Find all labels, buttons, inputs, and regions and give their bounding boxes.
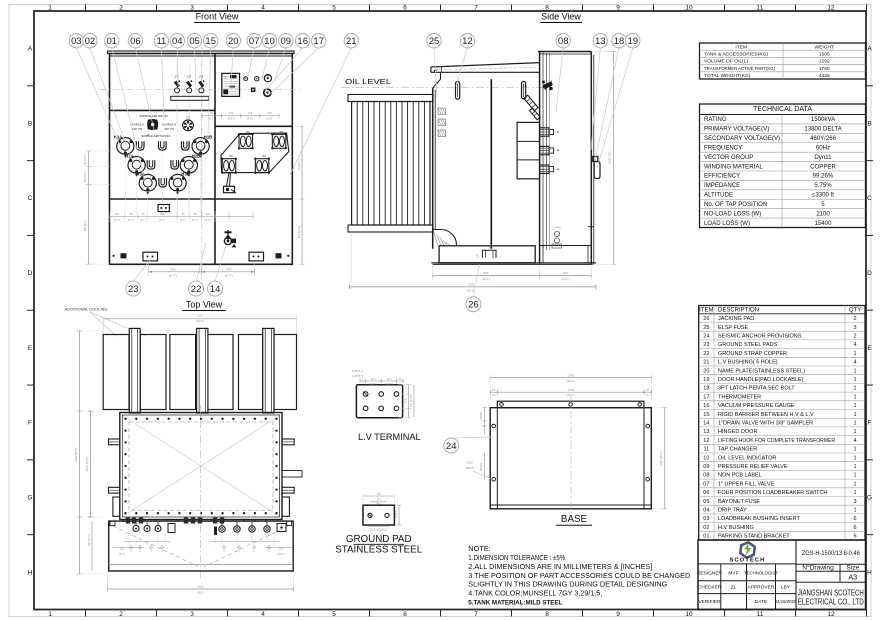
svg-text:[1"]: [1"] xyxy=(646,395,650,397)
svg-text:ITEM: ITEM xyxy=(735,44,747,50)
svg-text:DESCRIPTION: DESCRIPTION xyxy=(718,308,759,314)
svg-text:[3.7"]: [3.7"] xyxy=(180,219,186,222)
svg-text:[5.3"]: [5.3"] xyxy=(267,117,273,120)
svg-text:450: 450 xyxy=(171,267,176,271)
svg-text:17: 17 xyxy=(703,394,709,400)
svg-text:LOADBREAK BUSHING INSERT: LOADBREAK BUSHING INSERT xyxy=(718,516,800,522)
svg-text:1: 1 xyxy=(853,351,856,357)
svg-text:20: 20 xyxy=(228,36,239,47)
svg-text:895: 895 xyxy=(483,271,488,275)
svg-text:L.V BUSHING( 6 HOLE): L.V BUSHING( 6 HOLE) xyxy=(718,360,778,366)
svg-text:[3.7"]: [3.7"] xyxy=(140,219,146,222)
svg-text:ADDITIONAL COOLING: ADDITIONAL COOLING xyxy=(65,308,108,312)
svg-text:09: 09 xyxy=(703,464,709,470)
svg-text:[3.7"]: [3.7"] xyxy=(192,219,198,222)
svg-text:220: 220 xyxy=(120,547,125,551)
svg-text:02: 02 xyxy=(85,36,96,47)
svg-text:H: H xyxy=(28,569,33,576)
svg-text:4: 4 xyxy=(853,360,856,366)
svg-text:2.ALL DIMENSIONS ARE IN MILLIM: 2.ALL DIMENSIONS ARE IN MILLIMETERS & [I… xyxy=(468,562,652,571)
svg-text:1292: 1292 xyxy=(819,59,830,65)
svg-text:1"DRAIN VALVE WITH 3/8" SAMPLE: 1"DRAIN VALVE WITH 3/8" SAMPLER xyxy=(718,421,813,427)
svg-text:OIL LEVEL: OIL LEVEL xyxy=(345,77,391,86)
svg-text:1: 1 xyxy=(853,447,856,453)
svg-text:750: 750 xyxy=(279,547,284,551)
svg-text:VOLUME OF OIL(L): VOLUME OF OIL(L) xyxy=(704,59,748,65)
svg-text:3.THE POSITION OF PART ACCESSO: 3.THE POSITION OF PART ACCESSORIES COULD… xyxy=(468,571,690,580)
svg-text:TAP ON: TAP ON xyxy=(164,127,174,131)
svg-text:SLIGHTLY IN THIS DRAWING DURIN: SLIGHTLY IN THIS DRAWING DURING DETAIL D… xyxy=(468,580,667,589)
svg-text:X2: X2 xyxy=(262,154,266,158)
svg-text:15400: 15400 xyxy=(815,220,833,227)
svg-text:[1"]: [1"] xyxy=(492,395,496,397)
svg-text:[61"]: [61"] xyxy=(198,590,204,594)
svg-text:[5.3"]: [5.3"] xyxy=(247,117,253,120)
svg-text:THERMOMETER: THERMOMETER xyxy=(718,394,761,400)
svg-text:VECTOR GROUP: VECTOR GROUP xyxy=(704,154,753,161)
svg-text:3: 3 xyxy=(853,499,856,505)
svg-text:15: 15 xyxy=(703,412,709,418)
svg-text:11: 11 xyxy=(757,611,764,618)
svg-text:903.5 [35.6"]: 903.5 [35.6"] xyxy=(85,456,89,471)
svg-text:5: 5 xyxy=(332,611,336,618)
svg-text:1: 1 xyxy=(48,611,52,618)
svg-text:19: 19 xyxy=(703,377,709,383)
svg-text:LBY: LBY xyxy=(781,585,791,591)
svg-text:120: 120 xyxy=(206,212,211,216)
svg-text:QTY: QTY xyxy=(849,308,861,314)
svg-text:1: 1 xyxy=(853,421,856,427)
svg-text:835 [32.9"]: 835 [32.9"] xyxy=(297,225,301,238)
svg-text:[54.3"]: [54.3"] xyxy=(567,379,575,383)
svg-text:[3"]: [3"] xyxy=(377,499,381,502)
svg-text:60Hz: 60Hz xyxy=(816,144,830,151)
svg-text:L.V TERMINAL: L.V TERMINAL xyxy=(358,432,421,442)
svg-text:GROUND STEEL PADS: GROUND STEEL PADS xyxy=(718,342,778,348)
svg-text:1505: 1505 xyxy=(819,52,830,58)
svg-text:[17.7"]: [17.7"] xyxy=(225,273,233,277)
svg-text:12: 12 xyxy=(827,611,835,618)
svg-text:1360: 1360 xyxy=(568,373,575,377)
svg-text:205 [8"]: 205 [8"] xyxy=(480,412,483,420)
svg-text:129: 129 xyxy=(229,111,234,115)
svg-text:12: 12 xyxy=(462,36,473,47)
svg-text:250 [9.8"]: 250 [9.8"] xyxy=(83,171,87,182)
svg-text:TANK & ACCESSORIES(KG): TANK & ACCESSORIES(KG) xyxy=(704,52,768,58)
svg-text:3: 3 xyxy=(190,611,194,618)
svg-text:1.DIMENSION TOLERANCE : ±5%: 1.DIMENSION TOLERANCE : ±5% xyxy=(468,553,565,562)
svg-text:VACUUM PRESSURE GAUGE: VACUUM PRESSURE GAUGE xyxy=(718,403,795,409)
svg-text:8: 8 xyxy=(545,611,549,618)
svg-text:Size: Size xyxy=(846,565,859,572)
svg-text:WINDING MATERIAL: WINDING MATERIAL xyxy=(704,163,763,170)
svg-text:4: 4 xyxy=(853,342,856,348)
svg-text:03: 03 xyxy=(71,36,82,47)
svg-text:1760: 1760 xyxy=(819,66,830,72)
svg-text:14: 14 xyxy=(210,284,221,295)
svg-text:450: 450 xyxy=(226,267,231,271)
svg-text:6: 6 xyxy=(853,516,856,522)
svg-text:3: 3 xyxy=(190,5,194,12)
svg-text:18: 18 xyxy=(703,386,709,392)
svg-text:RIGID BARRIER BETWEEN H.V & L.: RIGID BARRIER BETWEEN H.V & L.V xyxy=(718,412,814,418)
svg-text:05: 05 xyxy=(703,499,709,505)
svg-text:21: 21 xyxy=(703,360,709,366)
svg-text:07: 07 xyxy=(703,481,709,487)
svg-text:11: 11 xyxy=(757,5,764,12)
svg-text:26: 26 xyxy=(468,300,479,311)
svg-text:23: 23 xyxy=(703,342,709,348)
svg-text:460Y/266: 460Y/266 xyxy=(810,135,837,142)
svg-text:10: 10 xyxy=(703,455,709,461)
svg-text:19: 19 xyxy=(628,36,639,47)
svg-text:TAP CHANGER: TAP CHANGER xyxy=(718,447,757,453)
svg-text:250 [9.8"]: 250 [9.8"] xyxy=(83,154,87,165)
svg-text:22: 22 xyxy=(703,351,709,357)
svg-text:01: 01 xyxy=(107,36,118,47)
svg-text:1: 1 xyxy=(48,5,52,12)
svg-text:129: 129 xyxy=(267,111,272,115)
svg-text:ALTITUDE: ALTITUDE xyxy=(704,192,733,199)
svg-text:≤3300 ft: ≤3300 ft xyxy=(812,192,834,199)
svg-text:1" UPPER FILL VALVE: 1" UPPER FILL VALVE xyxy=(718,481,775,487)
svg-text:RATING: RATING xyxy=(704,116,727,123)
svg-text:10: 10 xyxy=(685,611,693,618)
svg-text:100: 100 xyxy=(477,253,480,258)
svg-text:08: 08 xyxy=(558,36,569,47)
svg-text:07: 07 xyxy=(249,36,260,47)
svg-text:4.TANK COLOR;MUNSELL 7GY 3,29/: 4.TANK COLOR;MUNSELL 7GY 3,29/1,5, xyxy=(468,589,602,598)
svg-text:SOURCE A: SOURCE A xyxy=(130,123,144,127)
svg-text:1: 1 xyxy=(853,473,856,479)
svg-text:SOURCE B: SOURCE B xyxy=(162,123,176,127)
svg-text:450 [17.7"]: 450 [17.7"] xyxy=(88,534,91,546)
svg-text:[0.57"]: [0.57"] xyxy=(370,383,377,386)
svg-text:SEISMIC ANCHOR PROVISIONS: SEISMIC ANCHOR PROVISIONS xyxy=(718,334,802,340)
svg-text:SOURCE A&B TAP ON: SOURCE A&B TAP ON xyxy=(140,114,168,118)
svg-text:ITEM: ITEM xyxy=(699,308,713,314)
svg-text:04: 04 xyxy=(172,36,183,47)
svg-text:7: 7 xyxy=(474,5,478,12)
svg-text:NAME PLATE(STAINLESS STEEL): NAME PLATE(STAINLESS STEEL) xyxy=(718,368,805,374)
svg-text:16: 16 xyxy=(703,403,709,409)
svg-text:F: F xyxy=(28,420,32,427)
svg-text:4: 4 xyxy=(853,438,856,444)
svg-text:256: 256 xyxy=(160,212,165,216)
svg-text:24: 24 xyxy=(703,334,709,340)
svg-text:22: 22 xyxy=(191,284,202,295)
svg-text:11: 11 xyxy=(703,447,709,453)
svg-text:NOTE:: NOTE: xyxy=(468,544,490,553)
svg-text:H2B: H2B xyxy=(192,153,200,158)
svg-text:ELSP FUSE: ELSP FUSE xyxy=(718,325,748,331)
svg-text:25 [1"]: 25 [1"] xyxy=(395,511,398,518)
svg-text:No. OF TAP POSITION: No. OF TAP POSITION xyxy=(704,201,767,208)
svg-text:1: 1 xyxy=(853,490,856,496)
svg-text:12: 12 xyxy=(703,438,709,444)
svg-text:1: 1 xyxy=(853,455,856,461)
svg-text:[Ø0.9"]: [Ø0.9"] xyxy=(466,466,475,470)
svg-text:FLUSH: FLUSH xyxy=(553,227,561,229)
svg-text:17: 17 xyxy=(313,36,324,47)
svg-text:25: 25 xyxy=(429,36,440,47)
svg-text:2: 2 xyxy=(119,611,123,618)
svg-text:6: 6 xyxy=(403,611,407,618)
svg-text:2: 2 xyxy=(853,316,856,322)
svg-text:[5.3"]: [5.3"] xyxy=(209,117,215,120)
svg-text:ZL: ZL xyxy=(731,585,737,591)
svg-text:23: 23 xyxy=(128,284,139,295)
svg-text:H1A: H1A xyxy=(114,135,122,140)
svg-text:(1/2-13UNC): (1/2-13UNC) xyxy=(370,528,387,532)
svg-text:D: D xyxy=(28,270,33,277)
svg-text:TRANSFORMER ACTIVE PART(KG): TRANSFORMER ACTIVE PART(KG) xyxy=(704,66,775,72)
svg-text:Top View: Top View xyxy=(186,300,223,310)
svg-text:3PT LATCH PENTA SEC BOLT: 3PT LATCH PENTA SEC BOLT xyxy=(718,386,795,392)
svg-text:1: 1 xyxy=(853,403,856,409)
svg-text:PRIMARY VOLTAGE(V): PRIMARY VOLTAGE(V) xyxy=(704,126,769,133)
svg-text:JACKING PAD: JACKING PAD xyxy=(718,316,754,322)
svg-text:HINGED DOOR: HINGED DOOR xyxy=(718,429,757,435)
svg-text:25: 25 xyxy=(703,325,709,331)
svg-text:E: E xyxy=(867,345,872,352)
svg-text:NON PCB LABEL: NON PCB LABEL xyxy=(718,473,762,479)
svg-text:4425: 4425 xyxy=(819,73,830,79)
svg-text:4: 4 xyxy=(261,611,265,618)
svg-text:SECONDARY VOLTAGE(V): SECONDARY VOLTAGE(V) xyxy=(704,135,780,142)
svg-text:[25.5"]: [25.5"] xyxy=(562,277,570,281)
svg-text:A3: A3 xyxy=(848,572,857,581)
svg-text:2099: 2099 xyxy=(468,283,475,287)
svg-text:04/16/2025: 04/16/2025 xyxy=(775,599,797,604)
svg-text:H: H xyxy=(867,569,872,576)
svg-text:2: 2 xyxy=(119,5,123,12)
svg-text:129: 129 xyxy=(248,111,253,115)
svg-text:C: C xyxy=(28,195,33,202)
svg-text:10: 10 xyxy=(685,5,693,12)
svg-text:1: 1 xyxy=(853,412,856,418)
svg-text:PARKING STAND BRACKET: PARKING STAND BRACKET xyxy=(718,534,790,540)
svg-text:[3.7"]: [3.7"] xyxy=(159,219,165,222)
svg-text:PRESSURE RELIEF VALVE: PRESSURE RELIEF VALVE xyxy=(718,464,788,470)
svg-text:11: 11 xyxy=(156,36,166,47)
svg-text:IMPEDANCE: IMPEDANCE xyxy=(704,182,740,189)
svg-text:1500kVA: 1500kVA xyxy=(811,116,836,123)
svg-text:VERIFIER: VERIFIER xyxy=(698,599,721,605)
svg-text:9: 9 xyxy=(616,611,620,618)
svg-text:13: 13 xyxy=(595,36,606,47)
svg-text:1143: 1143 xyxy=(197,313,203,317)
svg-text:44.5: 44.5 xyxy=(376,503,381,506)
svg-text:B: B xyxy=(867,120,871,127)
svg-text:45.5: 45.5 xyxy=(405,398,408,403)
svg-text:1: 1 xyxy=(853,377,856,383)
svg-text:Side View: Side View xyxy=(541,12,581,22)
svg-text:6: 6 xyxy=(853,534,856,540)
svg-text:B: B xyxy=(28,120,32,127)
svg-text:ELECTRICAL CO., LTD: ELECTRICAL CO., LTD xyxy=(798,598,864,607)
svg-text:1550: 1550 xyxy=(197,585,204,589)
svg-text:DOOR HANDLE(PAD LOCKABLE): DOOR HANDLE(PAD LOCKABLE) xyxy=(718,377,804,383)
svg-text:1: 1 xyxy=(853,429,856,435)
svg-text:5: 5 xyxy=(332,5,336,12)
svg-text:06: 06 xyxy=(130,36,141,47)
svg-text:02: 02 xyxy=(703,525,709,531)
svg-text:H.V BUSHING: H.V BUSHING xyxy=(718,525,754,531)
svg-text:Front View: Front View xyxy=(196,12,239,22)
svg-text:14: 14 xyxy=(703,421,709,427)
svg-text:BAYONET FUSE: BAYONET FUSE xyxy=(718,499,760,505)
svg-text:1: 1 xyxy=(853,508,856,514)
svg-text:[3.7"]: [3.7"] xyxy=(205,219,211,222)
svg-text:LIFTING HOOK FOR COMPLETE TRAN: LIFTING HOOK FOR COMPLETE TRANSFORMER xyxy=(718,438,835,444)
svg-text:04: 04 xyxy=(703,508,709,514)
svg-text:[5.3"]: [5.3"] xyxy=(228,117,234,120)
svg-text:2100: 2100 xyxy=(816,210,830,217)
svg-text:[82.6"]: [82.6"] xyxy=(467,288,475,292)
svg-text:LOAD LOSS (W): LOAD LOSS (W) xyxy=(704,220,750,227)
svg-text:E: E xyxy=(28,345,33,352)
svg-text:13800 DELTA: 13800 DELTA xyxy=(804,126,842,133)
svg-text:1: 1 xyxy=(853,394,856,400)
svg-text:NO-LOAD LOSS (W): NO-LOAD LOSS (W) xyxy=(704,210,761,217)
svg-text:SOURCE A&B TAP OFF: SOURCE A&B TAP OFF xyxy=(141,134,171,138)
svg-text:JIANGSHAN SCOTECH: JIANGSHAN SCOTECH xyxy=(798,588,864,597)
svg-text:C: C xyxy=(867,195,872,202)
svg-text:110: 110 xyxy=(210,111,215,115)
svg-text:4: 4 xyxy=(261,5,265,12)
svg-text:5.75%: 5.75% xyxy=(814,182,832,189)
svg-text:A: A xyxy=(867,46,872,53)
svg-text:1330: 1330 xyxy=(568,388,575,392)
svg-text:FREQUENCY: FREQUENCY xyxy=(704,144,742,151)
svg-text:6-[0.55"]: 6-[0.55"] xyxy=(352,374,363,378)
svg-text:DRIP TRAY: DRIP TRAY xyxy=(718,508,747,514)
svg-text:[3.7"]: [3.7"] xyxy=(114,219,120,222)
svg-text:99.26%: 99.26% xyxy=(813,173,834,180)
svg-text:21: 21 xyxy=(346,36,357,47)
svg-text:G: G xyxy=(27,494,32,501)
svg-text:CHECKER: CHECKER xyxy=(698,585,722,591)
svg-text:13: 13 xyxy=(703,429,709,435)
svg-text:100 [3.94"]: 100 [3.94"] xyxy=(410,395,413,407)
svg-text:14.5: 14.5 xyxy=(386,377,392,381)
svg-text:12: 12 xyxy=(827,5,835,12)
svg-text:DATE: DATE xyxy=(755,599,767,605)
svg-text:6: 6 xyxy=(403,5,407,12)
svg-text:[3.7"]: [3.7"] xyxy=(128,219,134,222)
svg-text:TAP ON: TAP ON xyxy=(132,127,142,131)
svg-text:H2A: H2A xyxy=(125,153,133,158)
svg-text:G: G xyxy=(867,494,872,501)
svg-text:TECHNICAL DATA: TECHNICAL DATA xyxy=(753,106,812,113)
svg-text:TOTAL WEIGHT(KG): TOTAL WEIGHT(KG) xyxy=(704,73,751,79)
svg-text:685 [27"]: 685 [27"] xyxy=(83,221,87,232)
svg-text:03: 03 xyxy=(703,516,709,522)
svg-text:F: F xyxy=(868,420,872,427)
svg-text:[29.5"]: [29.5"] xyxy=(277,553,284,556)
svg-text:[17.7"]: [17.7"] xyxy=(169,273,177,277)
svg-text:X3: X3 xyxy=(279,130,283,134)
svg-text:2: 2 xyxy=(853,334,856,340)
svg-text:06: 06 xyxy=(703,490,709,496)
svg-text:X1: X1 xyxy=(246,130,250,134)
svg-text:05: 05 xyxy=(189,36,200,47)
svg-text:H3B: H3B xyxy=(181,171,189,176)
svg-text:08: 08 xyxy=(703,473,709,479)
svg-text:5.TANK MATERIAL:MILD STEEL: 5.TANK MATERIAL:MILD STEEL xyxy=(468,599,562,606)
svg-text:26: 26 xyxy=(703,316,709,322)
svg-text:ZGS-H-1500/13.8-0.46: ZGS-H-1500/13.8-0.46 xyxy=(802,550,860,557)
svg-text:650: 650 xyxy=(563,271,568,275)
svg-text:1: 1 xyxy=(853,481,856,487)
svg-text:131: 131 xyxy=(115,212,120,216)
svg-text:[35.2"]: [35.2"] xyxy=(482,277,490,281)
svg-text:20: 20 xyxy=(703,368,709,374)
svg-text:BASE: BASE xyxy=(561,514,588,525)
svg-text:6-Ø14.3: 6-Ø14.3 xyxy=(352,369,363,373)
svg-text:9: 9 xyxy=(616,5,620,12)
svg-text:STAINLESS STEEL: STAINLESS STEEL xyxy=(335,545,422,556)
svg-text:Ø22: Ø22 xyxy=(467,461,473,465)
svg-text:14.5: 14.5 xyxy=(370,377,376,381)
svg-text:COPPER: COPPER xyxy=(810,163,836,170)
svg-text:2258 [88.9"]: 2258 [88.9"] xyxy=(74,448,78,463)
svg-text:[8.7"]: [8.7"] xyxy=(119,553,125,556)
svg-text:01: 01 xyxy=(703,534,709,540)
svg-text:[44.9"]: [44.9"] xyxy=(196,319,204,323)
svg-text:A: A xyxy=(28,46,33,53)
svg-text:1905 [75"]: 1905 [75"] xyxy=(608,151,612,164)
svg-text:Dyn11: Dyn11 xyxy=(814,154,832,161)
svg-text:1: 1 xyxy=(853,464,856,470)
svg-text:18: 18 xyxy=(614,36,625,47)
svg-text:MYF: MYF xyxy=(728,571,738,577)
svg-text:GROUND STRAP COPPER: GROUND STRAP COPPER xyxy=(718,351,787,357)
svg-text:TECHNOLOGIST: TECHNOLOGIST xyxy=(744,571,778,576)
svg-text:GROUND PAD: GROUND PAD xyxy=(346,534,412,545)
svg-text:1: 1 xyxy=(853,368,856,374)
svg-text:1: 1 xyxy=(853,386,856,392)
svg-text:[0.57"]: [0.57"] xyxy=(386,383,393,386)
svg-text:OIL LEVEL INDICATOR: OIL LEVEL INDICATOR xyxy=(718,455,776,461)
svg-text:FOUR POSITION LOADBREAKER SWIT: FOUR POSITION LOADBREAKER SWITCH xyxy=(718,490,827,496)
svg-text:7: 7 xyxy=(474,611,478,618)
svg-text:X0: X0 xyxy=(229,154,233,158)
svg-text:15: 15 xyxy=(205,36,216,47)
svg-text:6: 6 xyxy=(853,525,856,531)
svg-text:N°Drawing: N°Drawing xyxy=(802,564,834,572)
svg-text:8: 8 xyxy=(545,5,549,12)
svg-text:APPROVER: APPROVER xyxy=(748,585,775,591)
svg-text:D: D xyxy=(867,270,872,277)
svg-text:3: 3 xyxy=(853,325,856,331)
svg-text:SCOTECH: SCOTECH xyxy=(730,557,766,563)
svg-text:213 [8.4"]: 213 [8.4"] xyxy=(297,159,301,170)
svg-text:16: 16 xyxy=(297,36,308,47)
svg-text:09: 09 xyxy=(281,36,292,47)
svg-text:368 [6"]: 368 [6"] xyxy=(480,463,483,471)
svg-text:[52.4"]: [52.4"] xyxy=(567,393,575,397)
svg-text:10: 10 xyxy=(264,36,275,47)
svg-text:EFFICIENCY: EFFICIENCY xyxy=(704,173,740,180)
svg-text:24: 24 xyxy=(446,441,457,452)
svg-text:WEIGHT: WEIGHT xyxy=(814,44,834,50)
svg-text:895 [35.2"]: 895 [35.2"] xyxy=(659,451,663,465)
svg-text:DESIGNER: DESIGNER xyxy=(697,571,723,577)
